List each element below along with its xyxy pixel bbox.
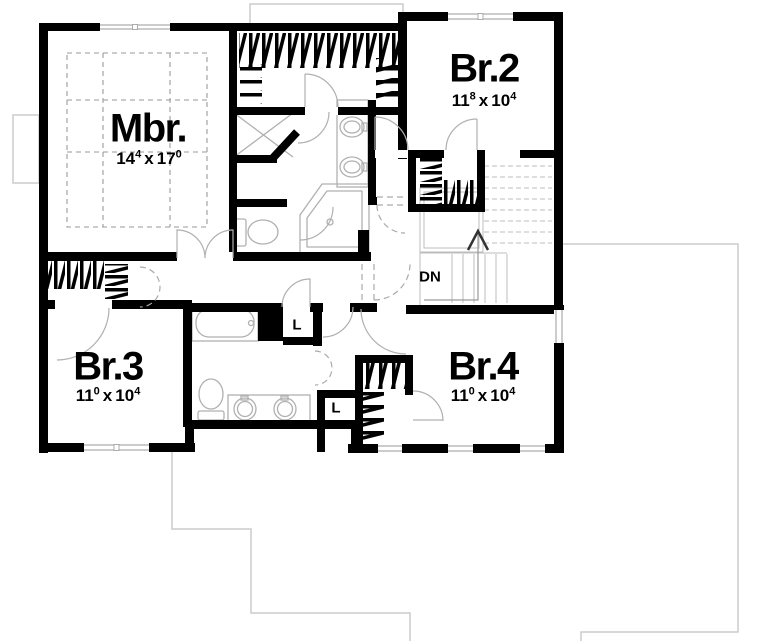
stairs-dn-label: DN: [419, 269, 441, 286]
hatch-br3-closet-top: [44, 261, 106, 289]
window-mbr-top: [100, 23, 170, 31]
hatch-master-closet-left: [240, 58, 262, 104]
door-hall-dashed: [362, 264, 410, 300]
floor-plan: Mbr. 144x170 Br.2 118x104 Br.3 110x104 B…: [0, 0, 760, 641]
room-dim-mbr: 144x170: [116, 149, 182, 169]
door-br4: [361, 309, 406, 354]
door-br2-closet: [446, 119, 477, 150]
roof-outline-right: [563, 244, 738, 641]
hatch-master-closet-right: [376, 58, 398, 104]
door-shower: [298, 112, 329, 143]
hatch-br3-closet-right: [105, 264, 128, 306]
roof-outline-bottom-left: [172, 452, 410, 641]
room-label-br2: Br.2: [449, 47, 519, 92]
room-dim-br4: 110x104: [451, 386, 516, 406]
door-br4-closet: [413, 391, 443, 421]
door-master-wc: [300, 207, 333, 240]
vanity-hall-bath: [228, 395, 310, 422]
window-br4-bottom-2: [520, 444, 545, 453]
hatch-br2-closet-bottom: [443, 180, 477, 204]
window-br4-bottom-1: [448, 444, 473, 453]
window-br4-closet-bottom: [378, 444, 402, 453]
chimney-outline: [13, 115, 39, 183]
toilet-master: [232, 219, 278, 246]
hatch-br4-closet-left: [362, 390, 384, 446]
door-hall-vestibule: [323, 307, 353, 337]
window-br3-bottom: [84, 443, 149, 452]
toilet-hall-bath: [198, 379, 224, 420]
window-br2-top: [448, 12, 513, 21]
linen-label-upper: L: [292, 317, 301, 334]
stair-treads-lower: [452, 254, 507, 303]
floor-plan-canvas: [0, 0, 760, 641]
hatch-master-closet-top: [239, 33, 399, 68]
door-linen-hall: [282, 279, 310, 307]
linen-label-lower: L: [331, 400, 340, 417]
room-dim-br2: 118x104: [452, 91, 517, 111]
window-br4-right: [554, 310, 564, 343]
hatch-br2-closet-left: [420, 158, 442, 204]
door-bath-vestibule-dashed: [315, 351, 332, 385]
room-dim-br3: 110x104: [76, 386, 141, 406]
stair-treads-upper: [484, 166, 552, 243]
roof-outline-top: [250, 4, 403, 23]
door-master-closet: [305, 74, 338, 107]
room-label-mbr: Mbr.: [110, 107, 186, 152]
room-label-br3: Br.3: [73, 345, 143, 390]
room-label-br4: Br.4: [448, 345, 518, 390]
door-master-bath-dashed: [377, 197, 405, 233]
